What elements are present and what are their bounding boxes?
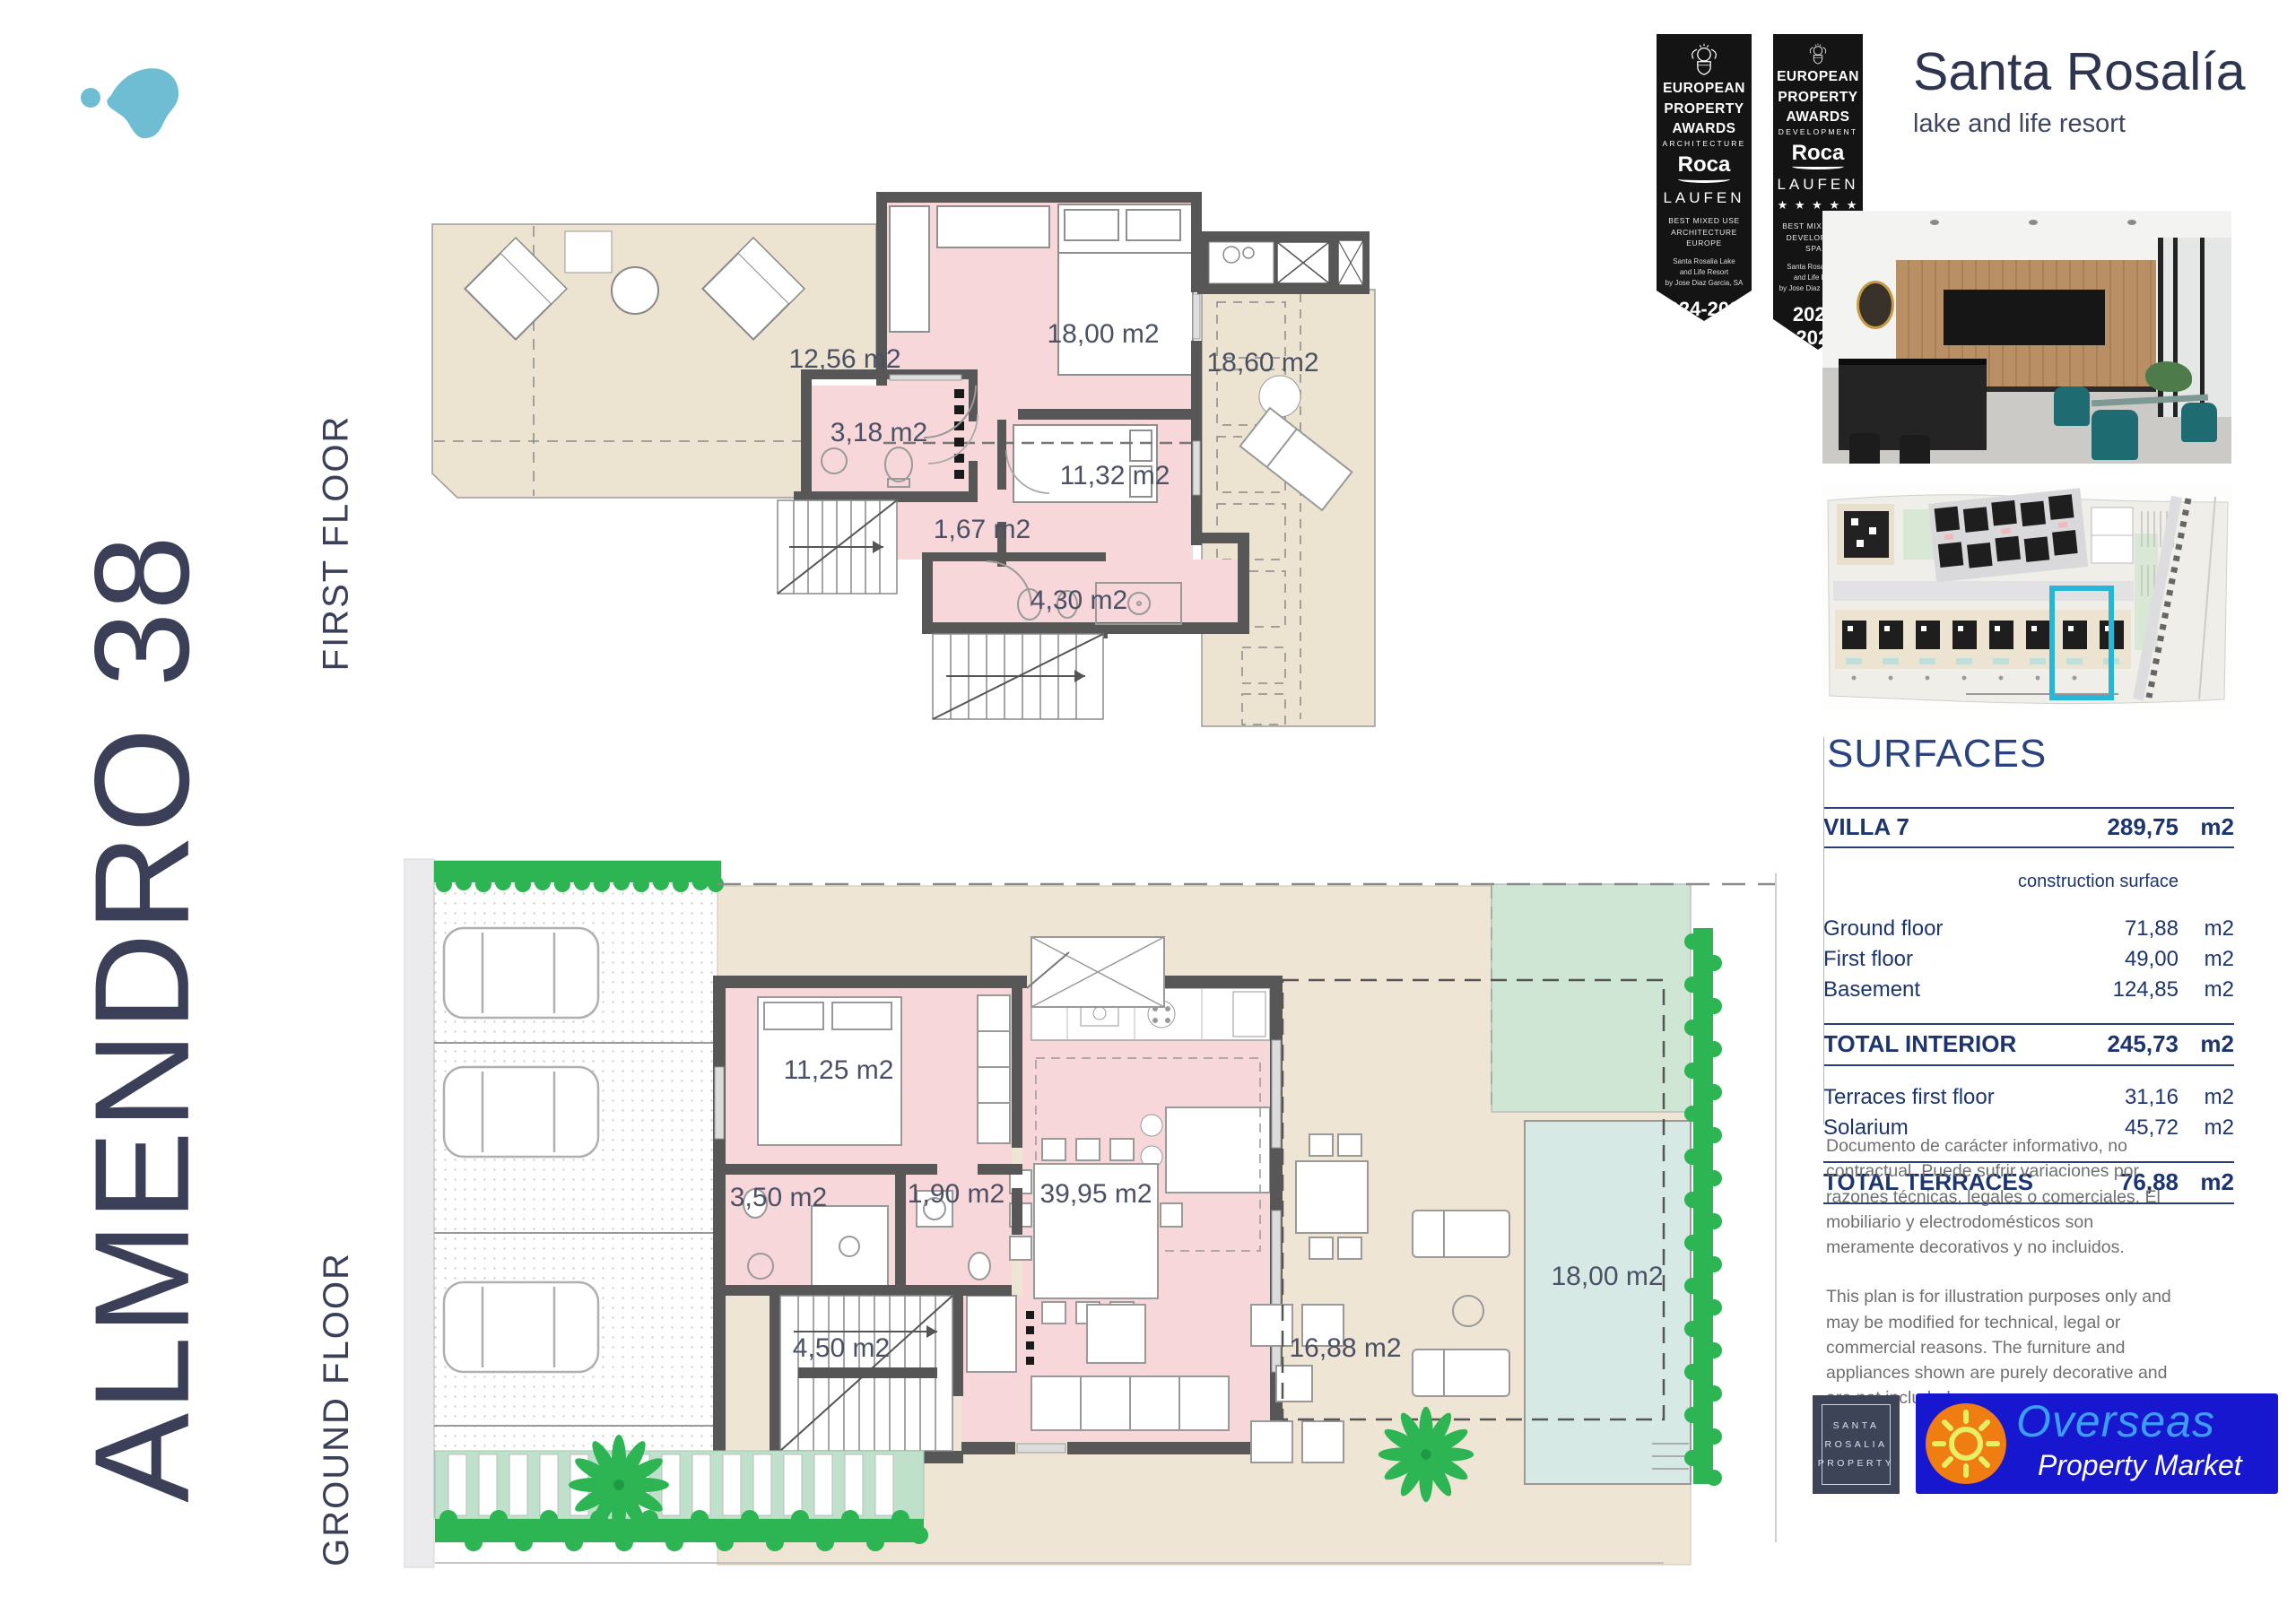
award-org-line: PROPERTY (1778, 90, 1857, 106)
project-title-wrap: ALMENDRO 38 (16, 511, 267, 1524)
award-org-line: EUROPEAN (1663, 81, 1745, 97)
award-org-line: PROPERTY (1664, 101, 1744, 117)
award-crest-icon (1797, 43, 1839, 65)
pergola-strip (435, 1451, 924, 1519)
room-label: 18,00 m2 (1047, 319, 1159, 349)
award-recipient-line: Santa Rosalia Lake (1665, 256, 1744, 267)
dining-chair (2054, 386, 2090, 426)
disclaimer-spanish: Documento de carácter informativo, no co… (1826, 1133, 2187, 1260)
room-label: 3,18 m2 (831, 418, 927, 447)
resort-brand: Santa Rosalía lake and life resort (1913, 41, 2246, 139)
row-unit: m2 (2179, 944, 2234, 975)
laufen-logo: LAUFEN (1777, 176, 1858, 194)
villa-label: VILLA 7 (1823, 813, 2071, 841)
brochure-page: ALMENDRO 38 FIRST FLOOR GROUND FLOOR (0, 0, 2296, 1623)
first-floor-plan: 12,56 m2 18,00 m2 18,60 m2 3,18 m2 11,32… (430, 145, 1399, 728)
bar-stool (1849, 433, 1880, 464)
lake-logo (77, 57, 196, 149)
surface-row: Ground floor 71,88 m2 (1823, 914, 2234, 944)
construction-surface-note: construction surface (1823, 872, 2179, 892)
kitchen-photo (1822, 211, 2231, 464)
award-title-line: ARCHITECTURE (1668, 227, 1740, 239)
room-label: 16,88 m2 (1289, 1333, 1401, 1363)
row-label: Terraces first floor (1823, 1082, 2071, 1113)
row-value: 71,88 (2071, 914, 2179, 944)
row-unit: m2 (2179, 1113, 2234, 1143)
entry-skylight (1027, 937, 1164, 1007)
roca-logo: Roca (1678, 154, 1731, 176)
row-value: 245,73 (2071, 1030, 2179, 1058)
surfaces-title: SURFACES (1827, 732, 2234, 777)
villa-total-row: VILLA 7 289,75 m2 (1823, 807, 2234, 848)
disclaimer-english: This plan is for illustration purposes o… (1826, 1284, 2187, 1410)
sun-icon (1926, 1403, 2006, 1484)
apartment-block (1928, 488, 2088, 582)
total-interior-row: TOTAL INTERIOR 245,73 m2 (1823, 1023, 2234, 1066)
ground-floor-label-wrap: GROUND FLOOR (290, 1249, 383, 1568)
villa-unit: m2 (2179, 813, 2234, 841)
room-label: 1,90 m2 (908, 1179, 1004, 1209)
room-label: 18,00 m2 (1551, 1262, 1663, 1291)
pool (1525, 1121, 1691, 1484)
dining-table (1010, 1139, 1182, 1324)
row-unit: m2 (2179, 1082, 2234, 1113)
disclaimer: Documento de carácter informativo, no co… (1826, 1133, 2187, 1436)
table-left-rule (1823, 737, 1824, 1124)
room-label: 39,95 m2 (1039, 1179, 1152, 1209)
dining-chair (2181, 403, 2217, 442)
row-label: Ground floor (1823, 914, 2071, 944)
row-value: 124,85 (2071, 975, 2179, 1005)
award-years: 2024-2025 (1657, 298, 1751, 321)
car (444, 928, 598, 1372)
roca-swoosh (1792, 163, 1844, 169)
row-unit: m2 (2179, 975, 2234, 1005)
row-label: TOTAL INTERIOR (1823, 1030, 2071, 1058)
dining-chair (2092, 410, 2138, 460)
utility-block (1197, 231, 1370, 294)
santa-rosalia-property-logo: SANTA ROSALIA PROPERTY (1813, 1395, 1900, 1494)
stairs-lower (933, 634, 1103, 719)
room-label: 18,60 m2 (1206, 348, 1318, 378)
room-label: 11,32 m2 (1060, 461, 1170, 490)
villa-value: 289,75 (2071, 813, 2179, 841)
sr-logo-line: ROSALIA (1824, 1436, 1887, 1454)
ground-floor-label: GROUND FLOOR (317, 1252, 357, 1567)
room-label: 11,25 m2 (784, 1055, 894, 1085)
laufen-logo: LAUFEN (1663, 189, 1744, 207)
room-label: 12,56 m2 (788, 344, 900, 374)
award-recipient-line: and Life Resort (1665, 267, 1744, 278)
stairs-upper (778, 500, 897, 594)
lawn (1492, 884, 1691, 1112)
surface-row: First floor 49,00 m2 (1823, 944, 2234, 975)
roca-logo: Roca (1792, 143, 1845, 164)
hedge-top (434, 861, 724, 892)
overseas-property-market-logo: Overseas Property Market (1916, 1393, 2278, 1494)
round-mirror (1857, 281, 1894, 329)
award-org-line: AWARDS (1786, 109, 1849, 126)
room-label: 4,50 m2 (793, 1333, 890, 1363)
award-category: ARCHITECTURE (1663, 139, 1746, 148)
award-banner-architecture: EUROPEAN PROPERTY AWARDS ARCHITECTURE Ro… (1657, 34, 1752, 321)
sr-logo-line: SANTA (1833, 1417, 1880, 1436)
row-unit: m2 (2179, 1030, 2234, 1058)
overseas-wordmark: Overseas (2016, 1395, 2215, 1447)
site-plan (1822, 484, 2233, 710)
row-value: 31,16 (2071, 1082, 2179, 1113)
surface-row: Basement 124,85 m2 (1823, 975, 2234, 1005)
award-org-line: EUROPEAN (1777, 69, 1859, 85)
award-org-line: AWARDS (1672, 121, 1735, 137)
roca-swoosh (1678, 175, 1730, 183)
surface-row: Terraces first floor 31,16 m2 (1823, 1082, 2234, 1113)
row-unit: m2 (2179, 1168, 2234, 1196)
award-title-line: BEST MIXED USE (1668, 215, 1740, 227)
first-floor-label: FIRST FLOOR (317, 414, 357, 671)
award-recipient-line: by Jose Diaz Garcia, SA (1665, 278, 1744, 289)
award-crest-icon (1683, 43, 1725, 77)
ground-floor-plan: 11,25 m2 3,50 m2 1,90 m2 39,95 m2 4,50 m… (404, 852, 1785, 1569)
resort-tagline: lake and life resort (1913, 109, 2246, 139)
resort-name: Santa Rosalía (1913, 41, 2246, 102)
award-title-line: EUROPE (1668, 238, 1740, 249)
room-label: 1,67 m2 (934, 515, 1031, 544)
row-unit: m2 (2179, 914, 2234, 944)
row-label: Basement (1823, 975, 2071, 1005)
plot-left-strip (404, 859, 434, 1567)
award-category: DEVELOPMENT (1779, 127, 1857, 136)
bar-stool (1900, 435, 1930, 464)
room-label: 3,50 m2 (730, 1183, 827, 1212)
row-value: 49,00 (2071, 944, 2179, 975)
property-market-wordmark: Property Market (2038, 1449, 2242, 1482)
kitchen-hood (1944, 290, 2105, 345)
sr-logo-line: PROPERTY (1818, 1454, 1895, 1473)
row-label: First floor (1823, 944, 2071, 975)
table-plant (2145, 361, 2192, 392)
stairs (780, 1296, 952, 1451)
parking-area (434, 861, 721, 1517)
room-label: 4,30 m2 (1031, 586, 1127, 615)
project-title: ALMENDRO 38 (65, 534, 220, 1503)
first-floor-label-wrap: FIRST FLOOR (290, 404, 383, 681)
